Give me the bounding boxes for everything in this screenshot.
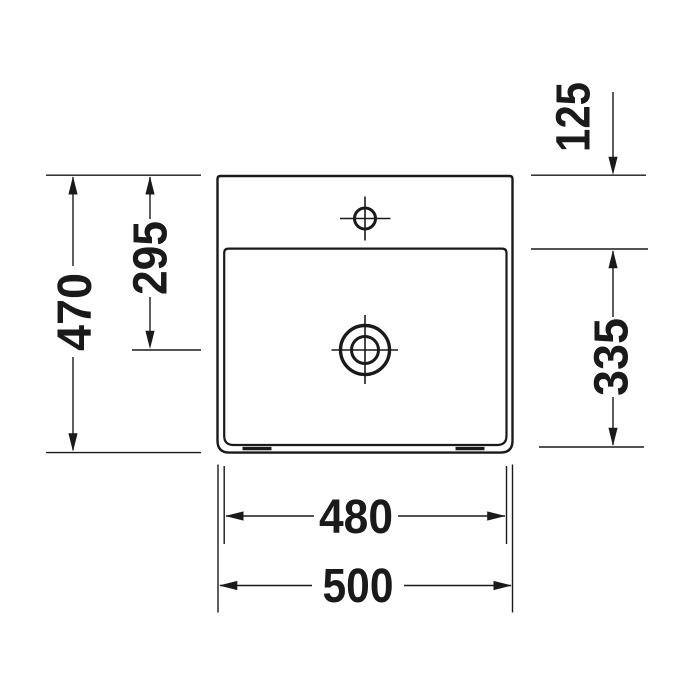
technical-drawing-canvas: 470 295 125 335 480 500 [0,0,694,694]
dim-label-inner-width: 480 [319,491,393,544]
dimension-inner-width: 480 [225,491,505,544]
dimension-rear-to-drain: 295 [125,176,178,349]
arrowhead-up-295 [145,176,154,194]
dimension-overall-width: 500 [219,560,512,613]
arrowhead-left-500 [219,581,237,590]
dimension-overall-depth: 470 [49,176,102,451]
arrowhead-down-295 [145,331,154,349]
dim-label-tap-deck-depth: 125 [548,82,601,152]
arrowhead-down-125 [608,157,617,175]
dim-label-overall-depth: 470 [49,273,102,351]
arrowhead-up-335 [608,250,617,268]
dim-label-overall-width: 500 [323,560,394,613]
technical-drawing-page: 470 295 125 335 480 500 [0,0,694,694]
dimension-inner-depth: 335 [586,250,639,446]
arrowhead-up-470 [68,176,77,194]
arrowhead-left-480 [225,511,243,520]
arrowhead-down-470 [68,433,77,451]
arrowhead-right-500 [494,581,512,590]
dim-label-rear-to-drain: 295 [125,221,178,295]
arrowhead-right-480 [487,511,505,520]
arrowhead-down-335 [608,428,617,446]
dimension-tap-deck: 125 [548,82,618,175]
dim-label-inner-depth: 335 [586,318,639,396]
